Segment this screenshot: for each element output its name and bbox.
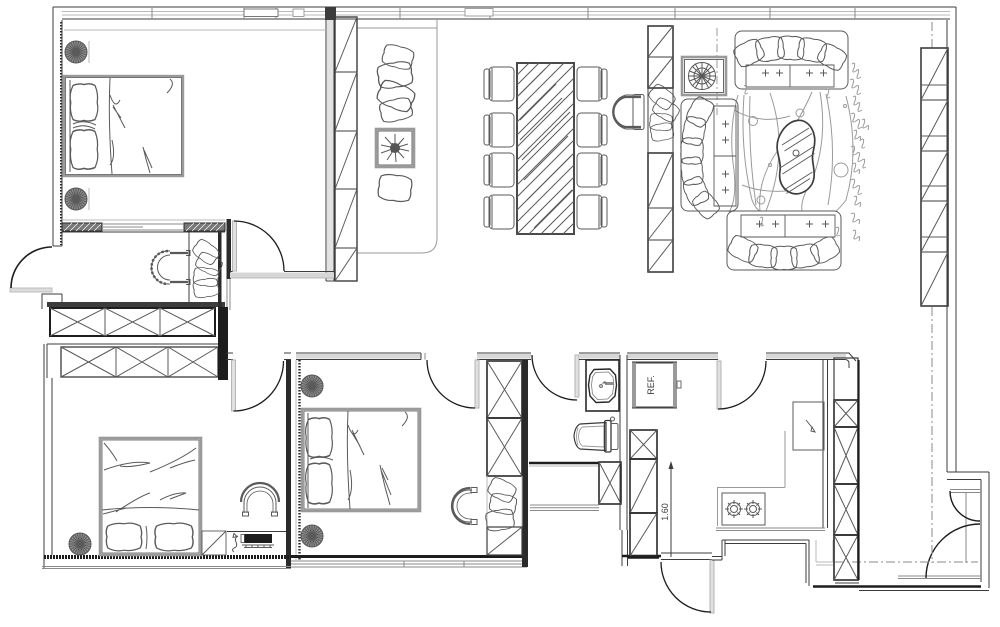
svg-text:1.60: 1.60 [660, 503, 670, 521]
svg-text:REF.: REF. [646, 375, 656, 395]
